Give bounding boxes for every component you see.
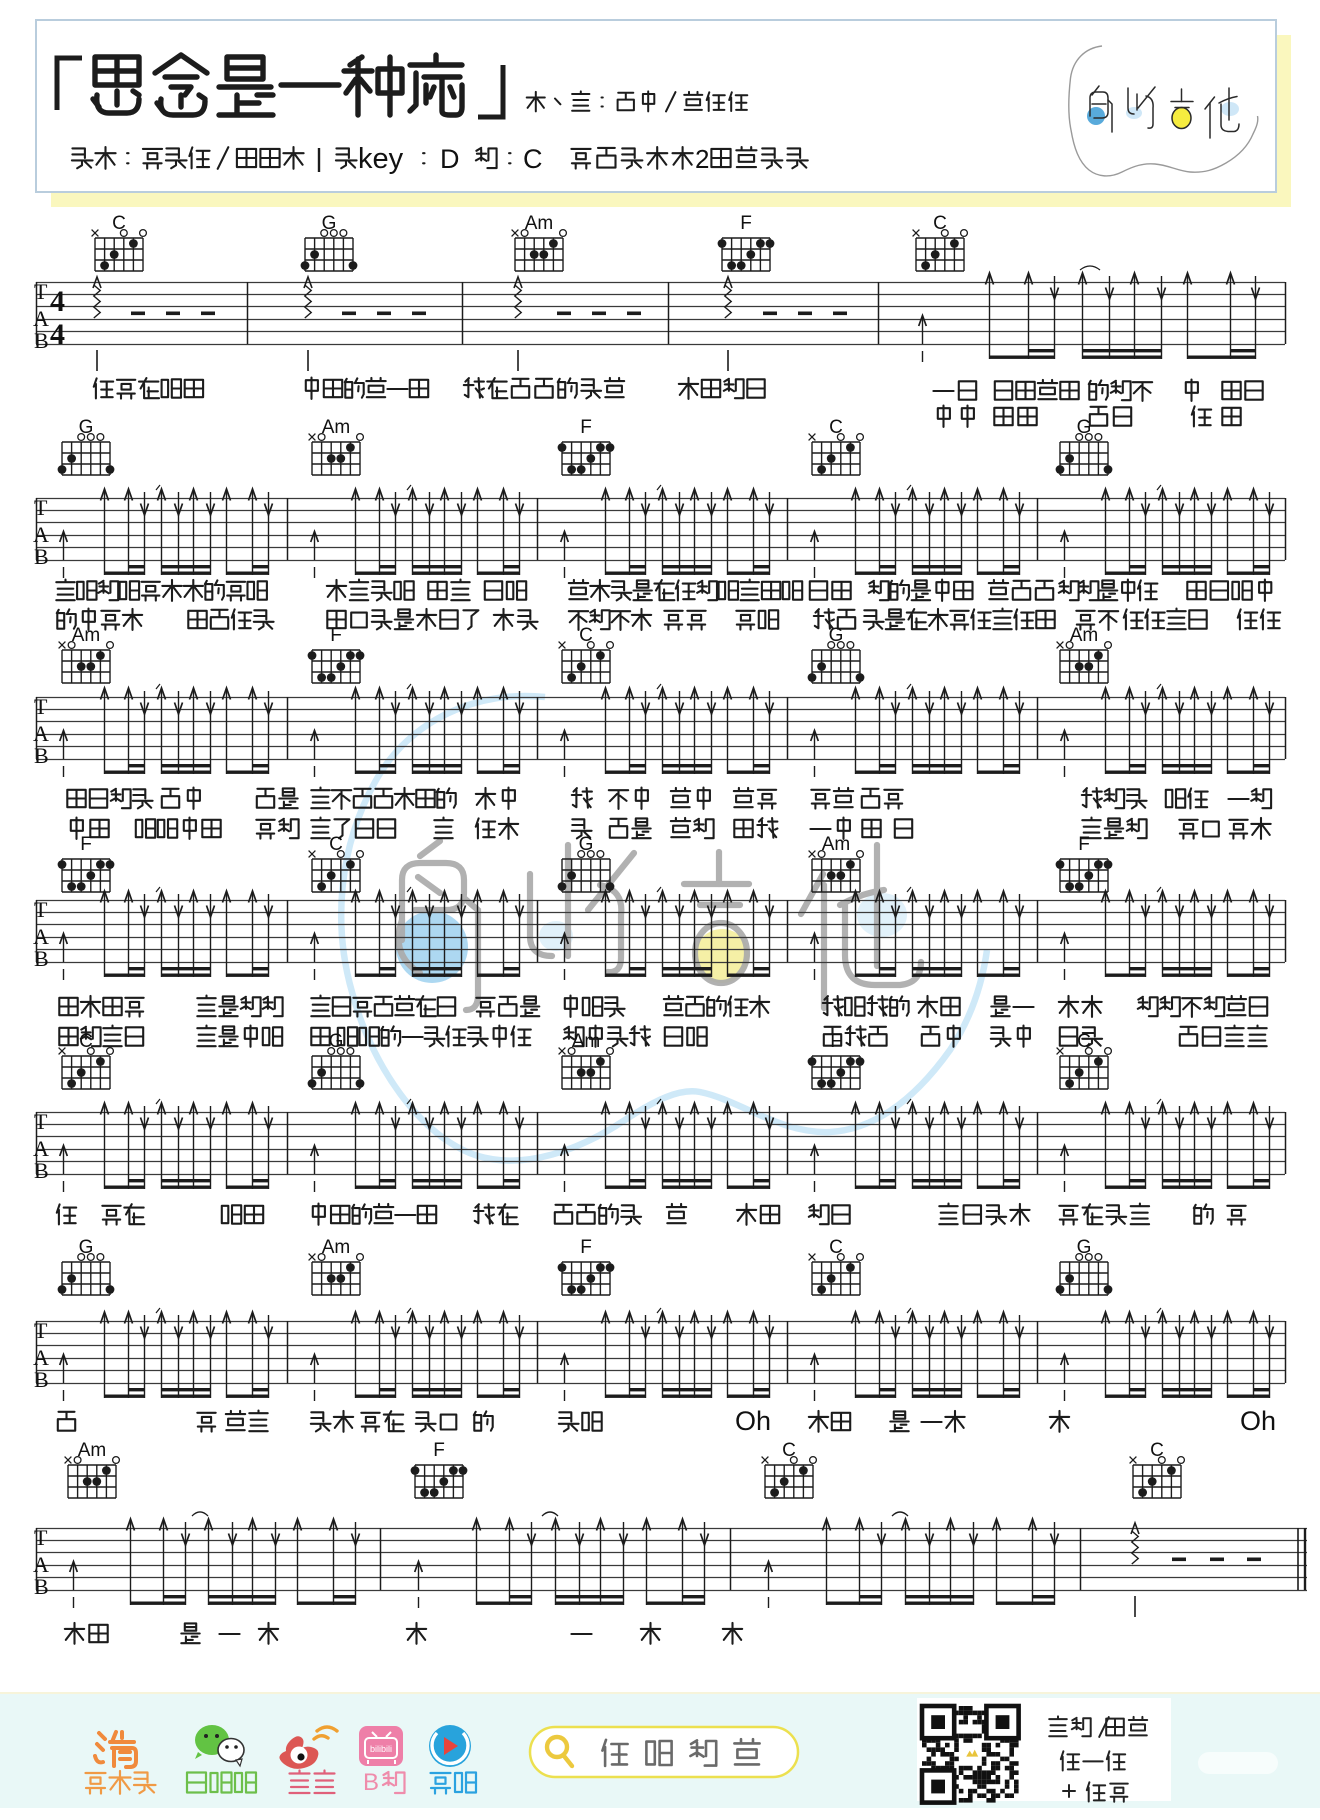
svg-text:Am: Am <box>822 834 851 855</box>
svg-text:2: 2 <box>695 144 709 174</box>
svg-text:G: G <box>1077 1237 1092 1258</box>
svg-text:F: F <box>330 625 342 646</box>
svg-text:G: G <box>79 1237 94 1258</box>
svg-text:Am: Am <box>72 625 101 646</box>
svg-text:bilibili: bilibili <box>370 1744 392 1754</box>
svg-text:C: C <box>329 834 343 855</box>
svg-text:C: C <box>523 144 543 174</box>
svg-text:Am: Am <box>322 1237 351 1258</box>
svg-text:key: key <box>358 143 404 175</box>
svg-text:Oh: Oh <box>1240 1406 1276 1436</box>
svg-text:C: C <box>1077 1031 1091 1052</box>
svg-text:4: 4 <box>50 285 65 318</box>
svg-text:Am: Am <box>78 1440 107 1461</box>
svg-text:F: F <box>740 213 752 234</box>
svg-text:G: G <box>329 1031 344 1052</box>
svg-text:F: F <box>580 1237 592 1258</box>
svg-text:C: C <box>933 213 947 234</box>
svg-text:C: C <box>782 1440 796 1461</box>
svg-text:G: G <box>829 625 844 646</box>
svg-text:G: G <box>322 213 337 234</box>
svg-text:Am: Am <box>1070 625 1099 646</box>
svg-text:C: C <box>1150 1440 1164 1461</box>
svg-text:Am: Am <box>572 1031 601 1052</box>
svg-text:B: B <box>363 1769 379 1796</box>
svg-text:4: 4 <box>50 318 65 351</box>
svg-text:Am: Am <box>525 213 554 234</box>
svg-text:C: C <box>829 417 843 438</box>
svg-text:G: G <box>579 834 594 855</box>
svg-text:C: C <box>579 625 593 646</box>
svg-text:F: F <box>580 417 592 438</box>
svg-text:F: F <box>80 834 92 855</box>
svg-text:F: F <box>830 1031 842 1052</box>
svg-text:F: F <box>1078 834 1090 855</box>
svg-text:Oh: Oh <box>735 1406 771 1436</box>
svg-text:F: F <box>433 1440 445 1461</box>
svg-text:Am: Am <box>322 417 351 438</box>
svg-text:D: D <box>440 144 460 174</box>
svg-text:G: G <box>79 417 94 438</box>
svg-text:G: G <box>1077 417 1092 438</box>
svg-text:C: C <box>112 213 126 234</box>
svg-text:C: C <box>79 1031 93 1052</box>
svg-text:C: C <box>829 1237 843 1258</box>
